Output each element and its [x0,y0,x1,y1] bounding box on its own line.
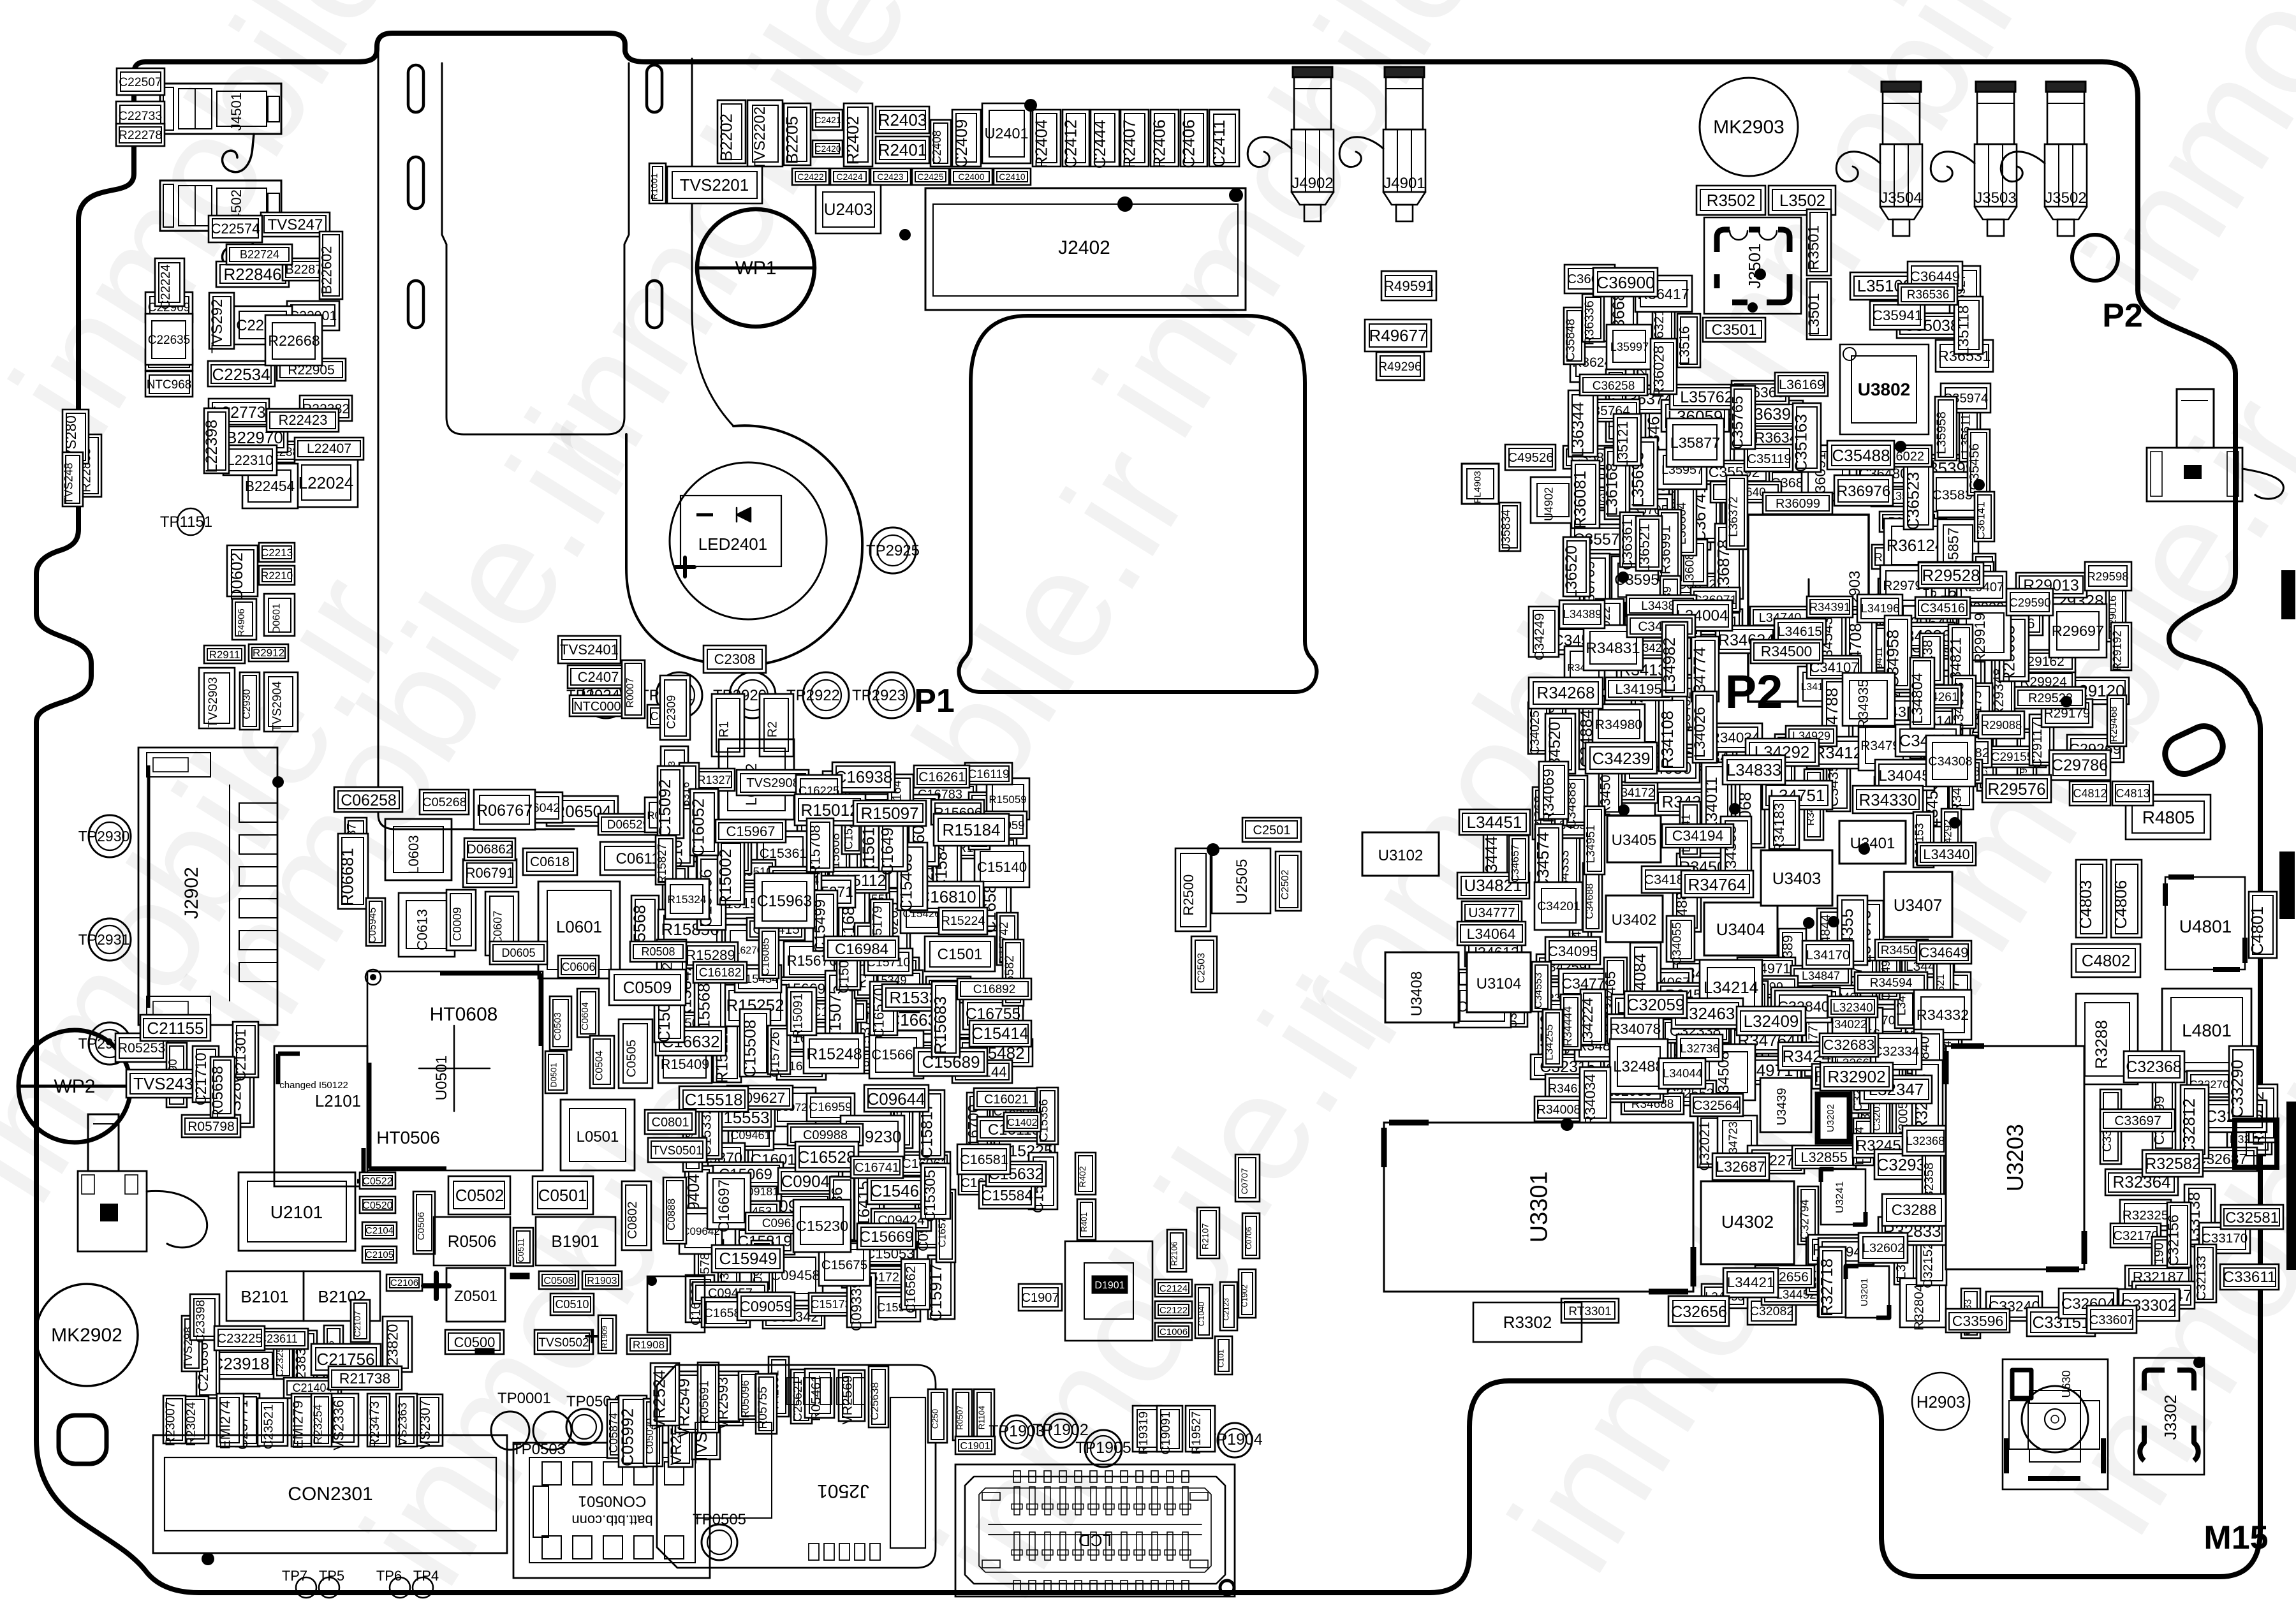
svg-text:C33697: C33697 [2114,1114,2161,1128]
svg-text:L34026: L34026 [1691,707,1709,758]
svg-text:L34951: L34951 [1584,825,1597,863]
svg-text:C05268: C05268 [422,795,466,809]
svg-text:L0501: L0501 [577,1128,619,1146]
svg-text:P1: P1 [914,682,955,719]
svg-text:L32340: L32340 [1832,1001,1873,1015]
svg-text:R15409: R15409 [661,1056,709,1072]
svg-text:C0510: C0510 [555,1298,589,1311]
svg-text:C15669: C15669 [860,1228,914,1246]
svg-text:C2106: C2106 [390,1278,418,1288]
svg-text:C33611: C33611 [2223,1269,2276,1286]
svg-text:R2407: R2407 [1119,119,1138,168]
svg-text:C49526: C49526 [1508,451,1553,465]
svg-text:L22398: L22398 [203,420,221,473]
svg-text:C34516: C34516 [1920,601,1965,616]
svg-text:R2500: R2500 [1181,874,1196,916]
svg-text:R36099: R36099 [1776,497,1820,511]
svg-text:C34239: C34239 [1592,749,1650,768]
svg-text:R34034: R34034 [1582,1074,1598,1126]
svg-text:C4801: C4801 [2248,906,2267,955]
svg-text:TP7: TP7 [282,1568,307,1584]
svg-text:M15: M15 [2204,1519,2268,1556]
svg-text:L36344: L36344 [1568,402,1587,457]
svg-text:L32736: L32736 [1680,1042,1719,1055]
svg-text:C09339: C09339 [848,1280,865,1331]
svg-text:VS2307: VS2307 [417,1400,433,1449]
svg-text:L34847: L34847 [1802,970,1840,982]
svg-text:C2502: C2502 [1280,869,1291,899]
svg-text:TP1902: TP1902 [1033,1421,1089,1439]
svg-text:L34615: L34615 [1777,624,1822,639]
svg-text:C15140: C15140 [977,859,1027,875]
svg-text:C2503: C2503 [1196,953,1207,983]
svg-text:R2911: R2911 [209,649,240,661]
svg-text:L0603: L0603 [406,835,422,874]
svg-text:L32488: L32488 [1613,1058,1664,1075]
svg-text:C2422: C2422 [797,172,823,182]
svg-text:U3241: U3241 [1834,1181,1846,1213]
svg-text:D06529: D06529 [607,818,650,832]
svg-text:R34183: R34183 [1771,803,1787,853]
svg-text:EMI274: EMI274 [217,1400,233,1449]
svg-text:C32133: C32133 [2195,1256,2209,1301]
svg-text:R2106: R2106 [1169,1241,1179,1265]
svg-text:C16119: C16119 [968,768,1010,781]
svg-text:C32564: C32564 [1693,1098,1740,1113]
svg-text:R29192: R29192 [2111,630,2124,670]
svg-text:C0511: C0511 [516,1238,526,1262]
svg-text:C32156: C32156 [2165,1214,2182,1266]
svg-text:L34195: L34195 [1615,681,1661,697]
svg-text:R15012: R15012 [800,800,858,820]
svg-text:C25638: C25638 [869,1382,881,1420]
svg-text:C2409: C2409 [952,119,971,168]
svg-text:L34045: L34045 [1878,767,1930,785]
svg-text:U35834: U35834 [1499,509,1513,552]
svg-text:R4906: R4906 [236,608,247,637]
svg-text:C33607: C33607 [2089,1313,2134,1327]
svg-text:C2423: C2423 [877,172,903,182]
svg-text:C1006: C1006 [1159,1327,1188,1338]
svg-text:U2403: U2403 [824,200,873,219]
svg-text:C0009: C0009 [451,907,464,941]
svg-text:C2104: C2104 [365,1225,394,1236]
svg-text:R1: R1 [717,721,732,738]
svg-text:C16959: C16959 [809,1101,851,1114]
svg-text:U3203: U3203 [2002,1124,2028,1191]
svg-text:HT0608: HT0608 [430,1004,498,1025]
svg-text:R0007: R0007 [625,677,636,707]
svg-text:C32683: C32683 [1823,1036,1875,1053]
svg-text:C15173: C15173 [811,1298,851,1311]
svg-text:C1040: C1040 [1196,1302,1206,1326]
svg-text:C34553: C34553 [1533,973,1544,1008]
svg-text:C2105: C2105 [365,1250,394,1260]
svg-text:R15059: R15059 [989,793,1026,806]
svg-text:TP0505: TP0505 [693,1511,746,1528]
svg-text:U3401: U3401 [1850,835,1895,852]
svg-text:C0506: C0506 [416,1212,427,1240]
svg-text:VR2524: VR2524 [650,1370,669,1430]
svg-text:R23007: R23007 [164,1401,178,1447]
svg-text:TP6: TP6 [376,1568,402,1584]
svg-text:FL4903: FL4903 [1472,471,1483,503]
svg-text:C32334: C32334 [1873,1044,1919,1059]
svg-text:R05096: R05096 [739,1380,751,1419]
svg-text:R34935: R34935 [1855,679,1871,729]
svg-text:C22733: C22733 [119,109,162,123]
svg-text:U0501: U0501 [433,1056,450,1101]
svg-text:L0601: L0601 [556,917,602,936]
svg-text:L35997: L35997 [1610,341,1649,353]
svg-text:L34170: L34170 [1806,948,1850,962]
svg-text:C34055: C34055 [1670,922,1684,966]
svg-text:HT0506: HT0506 [376,1128,440,1147]
svg-text:C05945: C05945 [367,908,378,943]
svg-text:B2202: B2202 [716,114,735,161]
svg-text:R34980: R34980 [1595,717,1642,732]
svg-text:C32794: C32794 [1798,1199,1811,1239]
svg-text:C19091: C19091 [1159,1412,1173,1455]
svg-text:C05992: C05992 [617,1408,637,1466]
svg-text:R22668: R22668 [268,332,320,349]
svg-text:C1907: C1907 [1022,1291,1059,1305]
svg-text:EMI279: EMI279 [290,1401,305,1449]
svg-text:C32021: C32021 [1696,1122,1712,1171]
svg-text:TP2930: TP2930 [78,828,130,844]
svg-text:C34688: C34688 [1584,883,1595,919]
svg-text:L32602: L32602 [1862,1241,1904,1255]
svg-text:R34500: R34500 [1761,643,1813,660]
svg-text:J3501: J3501 [1745,244,1764,289]
svg-text:C2408: C2408 [931,130,943,164]
svg-text:B22724: B22724 [240,248,279,261]
svg-text:C16697: C16697 [716,1179,733,1232]
svg-text:C16182: C16182 [699,966,742,980]
svg-text:C35848: C35848 [1564,319,1578,362]
svg-text:C09644: C09644 [867,1089,925,1109]
svg-text:C0504: C0504 [594,1051,605,1080]
svg-text:P2: P2 [1725,665,1783,718]
svg-text:C16528: C16528 [797,1147,855,1167]
svg-text:L32855: L32855 [1800,1149,1847,1165]
svg-text:C23225: C23225 [217,1332,262,1346]
svg-text:C34025: C34025 [1528,711,1542,755]
svg-text:R15002: R15002 [716,849,735,907]
svg-text:C4812: C4812 [2073,787,2107,800]
svg-text:C36258: C36258 [1593,380,1635,393]
svg-text:TVS243: TVS243 [133,1074,193,1093]
svg-text:C0607: C0607 [492,911,504,945]
svg-text:C16052: C16052 [689,799,708,857]
svg-text:U3408: U3408 [1408,971,1425,1017]
svg-text:C09988: C09988 [803,1128,848,1142]
svg-text:C0501: C0501 [538,1186,587,1205]
svg-text:H2903: H2903 [1917,1392,1966,1412]
svg-text:TP0503: TP0503 [512,1441,566,1458]
svg-text:TVS2908: TVS2908 [746,776,799,790]
svg-text:C33170: C33170 [2202,1231,2248,1246]
svg-text:C35765: C35765 [1730,396,1747,450]
svg-text:U3202: U3202 [1825,1104,1836,1132]
svg-text:J4901: J4901 [1383,175,1425,192]
svg-text:R34831: R34831 [1586,640,1640,657]
svg-text:C15584: C15584 [982,1187,1033,1204]
svg-text:R34108: R34108 [1658,711,1677,769]
svg-text:R1903: R1903 [587,1276,617,1287]
svg-text:R1001: R1001 [649,173,659,200]
svg-text:J3503: J3503 [1975,189,2016,207]
svg-text:R0508: R0508 [641,945,675,958]
svg-text:NTC968: NTC968 [147,378,192,392]
svg-text:C16581: C16581 [960,1151,1008,1167]
svg-text:R402: R402 [1077,1166,1087,1188]
svg-text:VS2336: VS2336 [331,1400,347,1450]
svg-text:R15683: R15683 [931,996,950,1054]
svg-text:J3504: J3504 [1880,189,1922,207]
svg-text:R34330: R34330 [1858,790,1917,809]
svg-text:C0706: C0706 [1244,1227,1253,1250]
svg-text:R36536: R36536 [1907,288,1950,302]
svg-text:C2400: C2400 [958,172,984,182]
svg-text:R49296: R49296 [1378,360,1421,374]
svg-text:J4501: J4501 [228,92,244,131]
svg-text:U3201: U3201 [1859,1278,1870,1306]
svg-text:B2101: B2101 [240,1287,288,1306]
svg-text:L34421: L34421 [1727,1274,1775,1290]
svg-text:L34340: L34340 [1923,846,1969,862]
svg-text:TVS248: TVS248 [63,462,75,504]
svg-text:C2421: C2421 [814,115,841,125]
svg-text:C15230: C15230 [796,1218,848,1234]
svg-text:TP1151: TP1151 [160,513,212,531]
svg-text:U3404: U3404 [1716,920,1765,939]
svg-text:L4801: L4801 [2182,1021,2232,1040]
svg-text:C2309: C2309 [665,695,678,729]
svg-text:L36168: L36168 [1603,462,1621,515]
svg-text:C16741: C16741 [855,1161,899,1175]
svg-text:C0802: C0802 [626,1202,640,1239]
svg-text:C0522: C0522 [362,1176,392,1187]
svg-text:D1901: D1901 [1094,1280,1124,1291]
svg-text:R2404: R2404 [1031,119,1050,168]
svg-text:R401: R401 [1079,1213,1089,1232]
svg-text:R2402: R2402 [843,116,862,165]
svg-text:L32368: L32368 [1906,1135,1945,1147]
svg-text:C36449: C36449 [1910,269,1961,284]
svg-text:C15963: C15963 [757,893,813,910]
svg-text:R06791: R06791 [466,865,514,881]
svg-text:R15224: R15224 [941,914,985,928]
svg-text:R3501: R3501 [1806,225,1823,270]
svg-text:U3403: U3403 [1772,869,1821,888]
svg-text:R34391: R34391 [1809,600,1850,614]
svg-text:C15305: C15305 [922,1170,938,1222]
svg-text:R49677: R49677 [1369,326,1427,345]
svg-text:R06767: R06767 [476,802,533,820]
svg-text:L34255: L34255 [1543,1024,1556,1061]
svg-text:R05691: R05691 [698,1380,712,1423]
svg-text:U3402: U3402 [1612,911,1657,929]
svg-text:C2410: C2410 [999,172,1025,182]
svg-text:R22278: R22278 [119,128,163,142]
svg-text:C21404: C21404 [292,1382,332,1394]
svg-text:D0602: D0602 [228,552,246,601]
svg-text:TP1905: TP1905 [1075,1439,1131,1457]
svg-text:U2101: U2101 [270,1202,323,1222]
svg-text:C0707: C0707 [1239,1168,1249,1194]
svg-text:C2123: C2123 [1221,1298,1230,1321]
svg-text:C32152: C32152 [1920,1242,1935,1288]
svg-text:C29155: C29155 [1991,751,2034,764]
svg-text:L3516: L3516 [1676,326,1692,365]
svg-text:C0505: C0505 [625,1040,639,1077]
svg-text:C29590: C29590 [2009,596,2050,609]
svg-text:U4801: U4801 [2179,917,2232,936]
svg-text:C29117: C29117 [2029,721,2045,769]
svg-text:TP2925: TP2925 [866,542,920,559]
svg-text:TVS0502: TVS0502 [538,1336,589,1350]
svg-text:R06681: R06681 [338,848,357,906]
svg-text:C34201: C34201 [1537,900,1580,913]
svg-text:R2406: R2406 [1149,119,1168,168]
svg-text:C2407: C2407 [578,669,619,685]
svg-text:RT3301: RT3301 [1568,1305,1611,1318]
svg-text:VS2363: VS2363 [397,1403,410,1446]
svg-text:U3439: U3439 [1775,1088,1789,1126]
svg-text:C21155: C21155 [147,1019,203,1038]
svg-text:L22310: L22310 [227,452,274,468]
svg-text:C0520: C0520 [362,1200,392,1211]
svg-text:R36124: R36124 [1887,537,1945,555]
svg-text:C36141: C36141 [1975,501,1987,540]
svg-text:U4302: U4302 [1721,1212,1774,1232]
svg-text:U3802: U3802 [1858,380,1911,399]
svg-text:J2402: J2402 [1058,237,1110,258]
svg-text:R1104: R1104 [976,1406,986,1429]
svg-text:C0613: C0613 [414,909,430,950]
svg-text:R29697: R29697 [2052,623,2104,639]
svg-text:C16984: C16984 [835,941,888,958]
svg-text:C15726: C15726 [768,1031,782,1077]
svg-text:TVS0501: TVS0501 [652,1144,702,1158]
svg-text:C32656: C32656 [1671,1303,1727,1321]
svg-text:B22454: B22454 [245,478,295,494]
svg-text:R34008: R34008 [1537,1103,1581,1117]
svg-text:C34249: C34249 [1533,613,1547,660]
svg-text:R32718: R32718 [1817,1258,1836,1316]
svg-text:C16892: C16892 [973,983,1016,996]
svg-text:L34804: L34804 [1909,673,1926,724]
svg-text:L36372: L36372 [1727,496,1740,536]
svg-text:C0508: C0508 [543,1276,573,1287]
svg-text:C06258: C06258 [341,792,397,809]
svg-text:U630: U630 [2060,1370,2073,1397]
svg-text:C15518: C15518 [684,1090,742,1109]
svg-text:L35121: L35121 [1615,421,1631,468]
svg-text:C32812: C32812 [2179,1098,2198,1156]
svg-text:R29919: R29919 [1971,613,1988,664]
svg-text:TP2922: TP2922 [786,687,840,704]
svg-text:R2912: R2912 [253,647,284,659]
svg-text:R32582: R32582 [2145,1155,2201,1173]
svg-text:L34451: L34451 [1467,813,1522,832]
svg-text:C0611: C0611 [616,850,660,867]
svg-text:WP1: WP1 [735,258,776,279]
svg-text:MK2902: MK2902 [51,1325,122,1346]
svg-text:TP2923: TP2923 [852,687,906,704]
svg-text:R15091: R15091 [791,993,805,1038]
svg-text:R36081: R36081 [1570,471,1589,529]
svg-text:L32687: L32687 [1716,1158,1765,1175]
svg-text:U3102: U3102 [1378,847,1424,864]
svg-text:C1902: C1902 [1240,1285,1249,1308]
svg-text:C0606: C0606 [561,961,595,973]
svg-text:U3407: U3407 [1894,896,1943,915]
svg-text:D06862: D06862 [467,842,513,857]
svg-text:C33596: C33596 [1952,1313,2004,1329]
svg-text:R05461: R05461 [809,1375,823,1421]
svg-text:C250: C250 [930,1409,939,1429]
svg-text:C15463: C15463 [870,1181,928,1200]
svg-text:L32409: L32409 [1744,1012,1799,1031]
svg-text:C1901: C1901 [960,1441,990,1452]
svg-text:R2403: R2403 [878,110,927,129]
svg-text:C15508: C15508 [740,1020,759,1078]
svg-text:C1402: C1402 [1007,1117,1037,1128]
svg-text:VR2569: VR2569 [839,1375,855,1425]
svg-text:R22423: R22423 [278,412,327,428]
svg-text:C34649: C34649 [1919,945,1968,961]
svg-text:C36361: C36361 [1619,519,1635,570]
svg-text:changed I50122: changed I50122 [279,1080,348,1091]
svg-text:C35488: C35488 [1832,446,1890,465]
svg-text:C35941: C35941 [1873,307,1923,323]
svg-text:L34982: L34982 [1659,637,1679,693]
svg-text:C15967: C15967 [726,823,775,839]
svg-text:R05658: R05658 [209,1066,226,1119]
svg-text:TP4: TP4 [413,1568,439,1584]
svg-text:R23254: R23254 [312,1405,325,1445]
svg-text:C33290: C33290 [2228,1059,2247,1117]
svg-text:L36521: L36521 [1636,524,1652,573]
svg-text:C2213: C2213 [261,547,293,559]
svg-text:C32059: C32059 [1627,996,1685,1014]
svg-text:C22574: C22574 [211,221,260,237]
svg-text:R3288: R3288 [2091,1020,2110,1069]
svg-text:L34214: L34214 [1704,979,1758,997]
svg-text:D0605: D0605 [501,947,535,959]
svg-text:C34194: C34194 [1672,827,1724,844]
svg-text:C4803: C4803 [2076,880,2095,929]
svg-text:R23473: R23473 [367,1401,382,1449]
svg-text:C1501: C1501 [938,946,983,963]
svg-text:C34095: C34095 [1548,943,1598,959]
svg-text:R21738: R21738 [339,1370,391,1387]
svg-text:MK2903: MK2903 [1713,117,1785,138]
svg-text:R22846: R22846 [223,265,281,284]
svg-text:C15361: C15361 [760,846,807,861]
svg-text:R05253: R05253 [118,1040,165,1056]
svg-text:C0500: C0500 [454,1334,496,1350]
svg-text:C23398: C23398 [194,1300,208,1343]
svg-text:TVS2201: TVS2201 [680,175,749,195]
svg-text:C35163: C35163 [1792,414,1811,472]
svg-text:R19319: R19319 [1137,1412,1151,1455]
svg-text:TP2931: TP2931 [78,931,130,948]
svg-text:R32325: R32325 [2123,1208,2168,1223]
svg-text:U34777: U34777 [1468,906,1515,920]
